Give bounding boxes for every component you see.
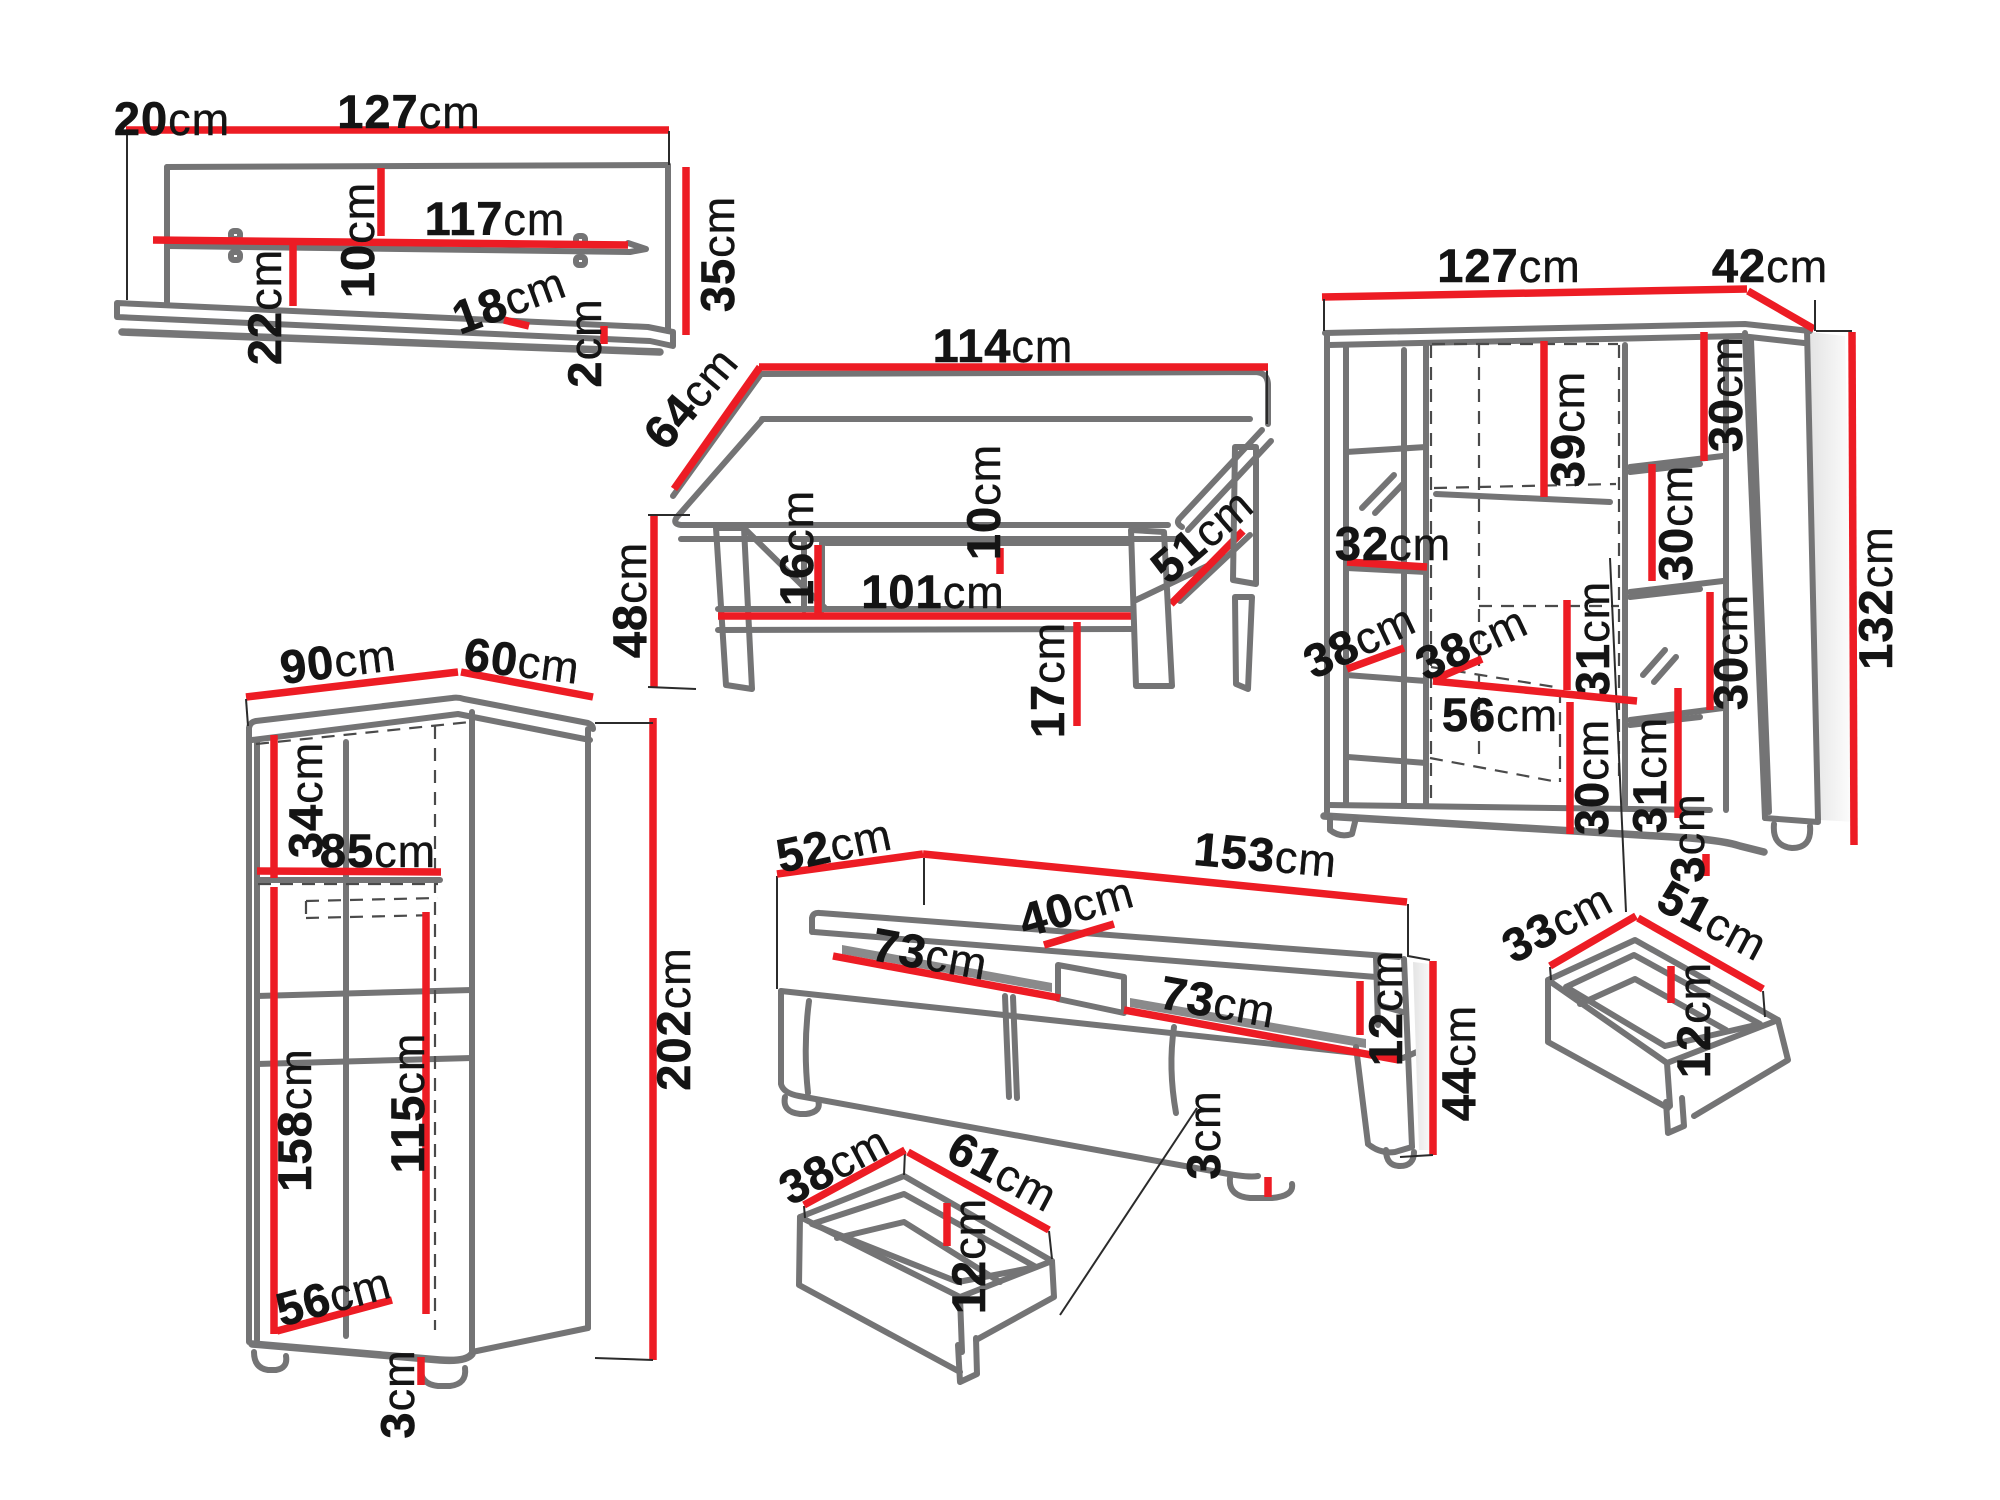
svg-text:12cm: 12cm — [1667, 962, 1720, 1078]
svg-text:32cm: 32cm — [1335, 517, 1451, 570]
svg-text:22cm: 22cm — [238, 249, 291, 365]
svg-text:31cm: 31cm — [1566, 581, 1619, 697]
svg-text:16cm: 16cm — [770, 490, 823, 606]
svg-text:115cm: 115cm — [381, 1033, 434, 1174]
svg-text:101cm: 101cm — [861, 565, 1004, 618]
svg-text:2cm: 2cm — [558, 298, 611, 387]
svg-text:127cm: 127cm — [1437, 239, 1580, 292]
svg-text:127cm: 127cm — [337, 85, 480, 138]
svg-text:30cm: 30cm — [1649, 465, 1702, 581]
svg-text:30cm: 30cm — [1699, 336, 1752, 452]
svg-text:3cm: 3cm — [1661, 793, 1714, 882]
svg-text:35cm: 35cm — [691, 196, 744, 312]
svg-text:3cm: 3cm — [1177, 1090, 1230, 1179]
svg-text:44cm: 44cm — [1432, 1005, 1485, 1121]
svg-text:114cm: 114cm — [933, 319, 1074, 372]
svg-text:202cm: 202cm — [647, 947, 700, 1090]
svg-text:3cm: 3cm — [371, 1349, 424, 1438]
svg-text:48cm: 48cm — [603, 542, 656, 658]
svg-text:117cm: 117cm — [425, 192, 566, 245]
svg-text:132cm: 132cm — [1849, 526, 1902, 669]
svg-text:56cm: 56cm — [1442, 688, 1558, 741]
svg-text:39cm: 39cm — [1541, 371, 1594, 487]
svg-text:30cm: 30cm — [1565, 719, 1618, 835]
svg-text:12cm: 12cm — [1359, 950, 1412, 1066]
svg-text:10cm: 10cm — [957, 444, 1010, 560]
svg-text:30cm: 30cm — [1704, 594, 1757, 710]
svg-text:158cm: 158cm — [268, 1048, 321, 1191]
svg-text:12cm: 12cm — [942, 1198, 995, 1314]
svg-text:17cm: 17cm — [1021, 622, 1074, 738]
svg-text:20cm: 20cm — [114, 92, 230, 145]
svg-text:10cm: 10cm — [331, 182, 384, 298]
svg-text:85cm: 85cm — [320, 824, 436, 877]
svg-text:42cm: 42cm — [1712, 239, 1828, 292]
